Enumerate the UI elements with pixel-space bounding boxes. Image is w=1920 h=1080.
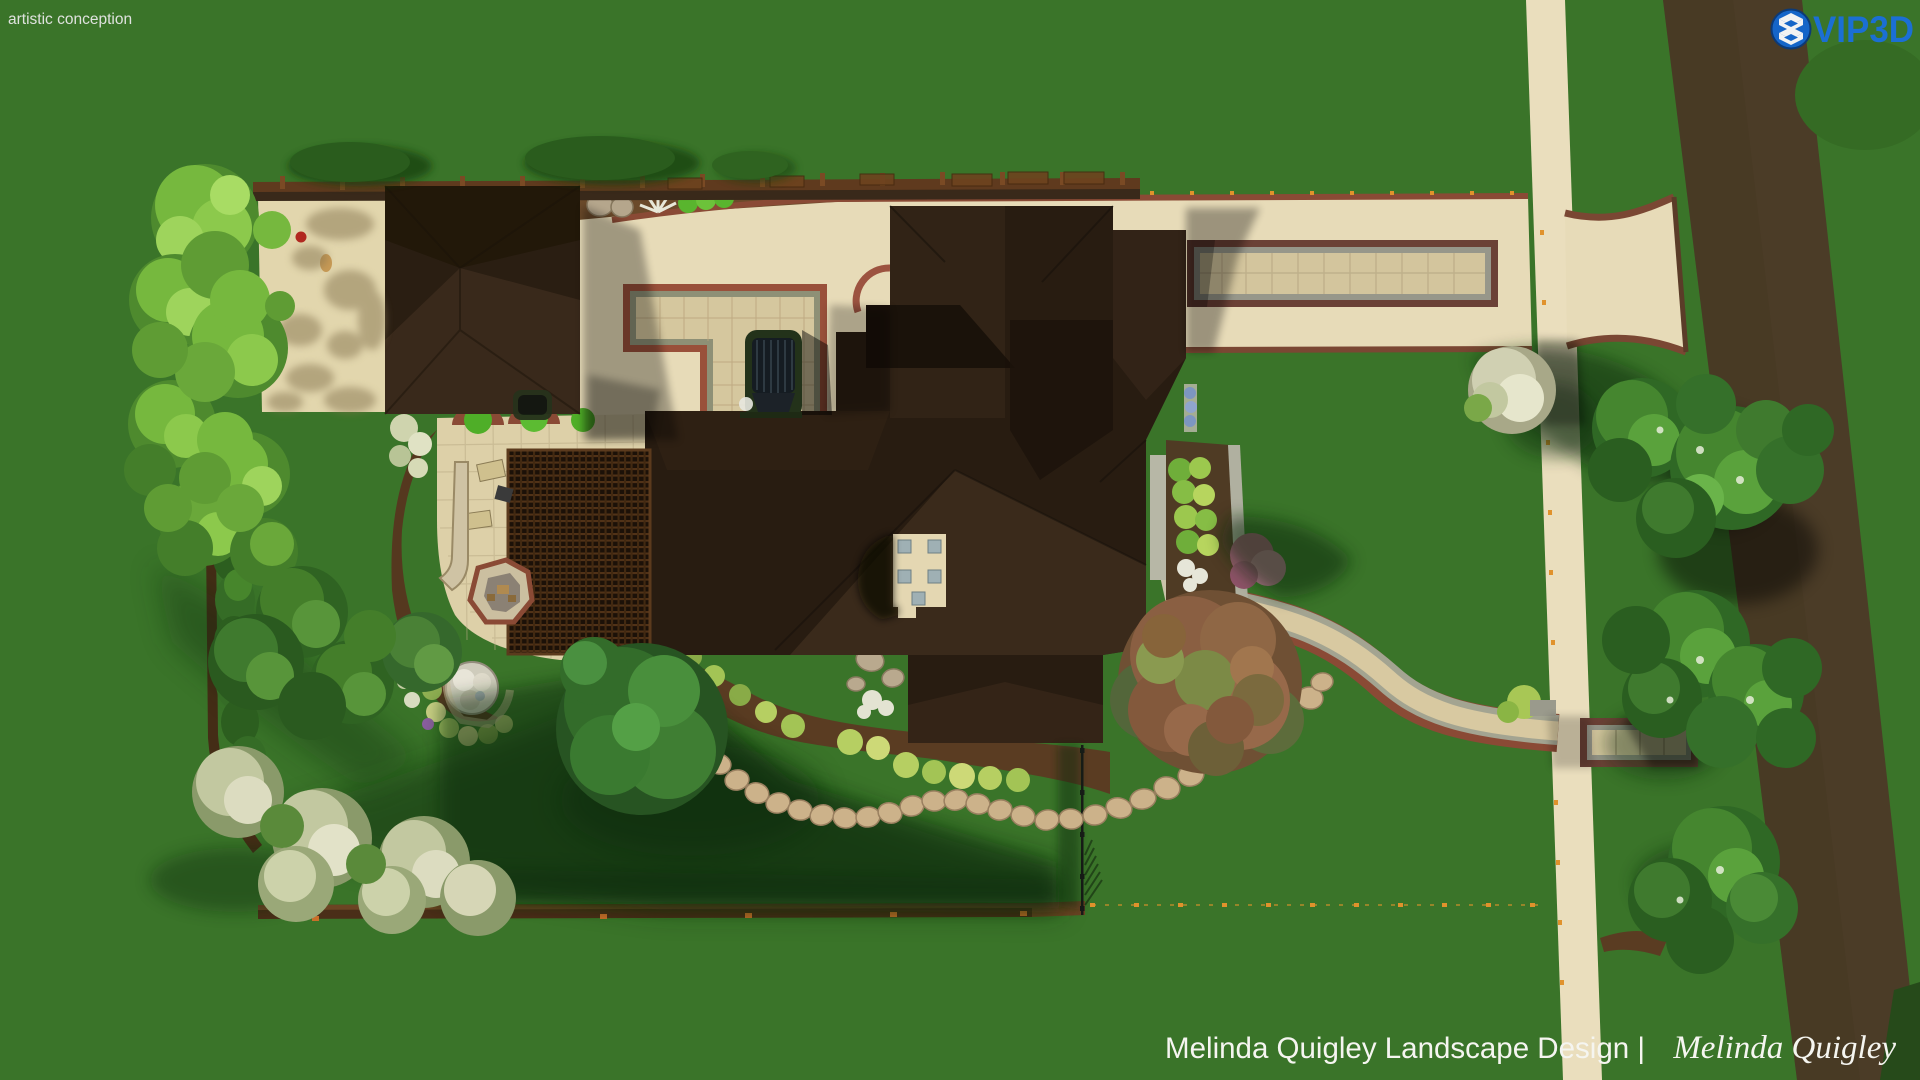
svg-text:Melinda Quigley: Melinda Quigley	[1672, 1030, 1896, 1066]
svg-text:VIP3D: VIP3D	[1813, 9, 1914, 50]
svg-text:artistic conception: artistic conception	[8, 11, 132, 28]
svg-text:Melinda Quigley Landscape Desi: Melinda Quigley Landscape Design |	[1165, 1032, 1645, 1065]
